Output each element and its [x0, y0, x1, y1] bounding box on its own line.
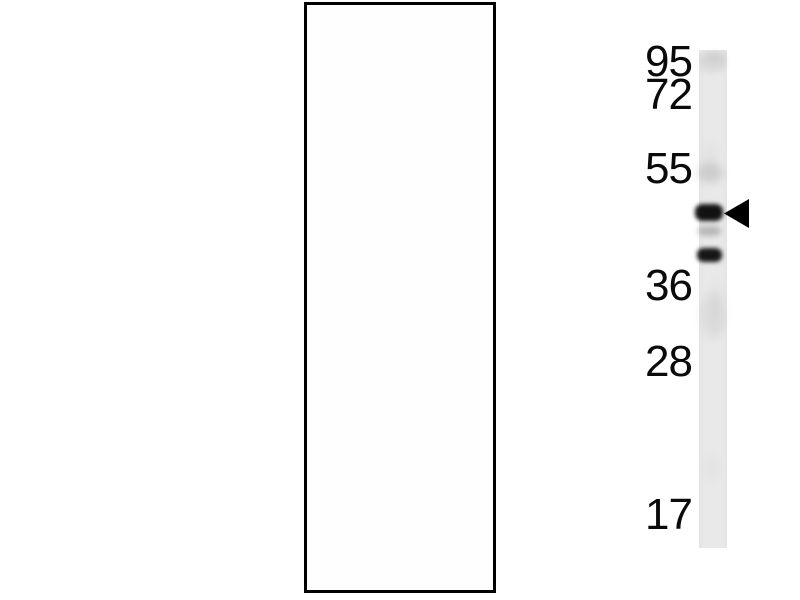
mw-marker-28: 28 [607, 340, 692, 384]
mw-marker-17: 17 [607, 493, 692, 537]
lower-band [697, 248, 722, 262]
band-arrow-icon [724, 199, 749, 228]
blot-panel: 95 72 55 36 28 17 [304, 2, 496, 593]
lane-smudge-mid [700, 293, 725, 338]
faint-band [698, 226, 721, 236]
page-background: 95 72 55 36 28 17 [0, 0, 800, 600]
main-band [695, 204, 723, 221]
lane-smudge-upper [697, 163, 723, 183]
lane-smudge-top [699, 51, 727, 73]
mw-marker-36: 36 [607, 264, 692, 308]
mw-marker-55: 55 [607, 147, 692, 191]
mw-marker-72: 72 [607, 73, 692, 117]
